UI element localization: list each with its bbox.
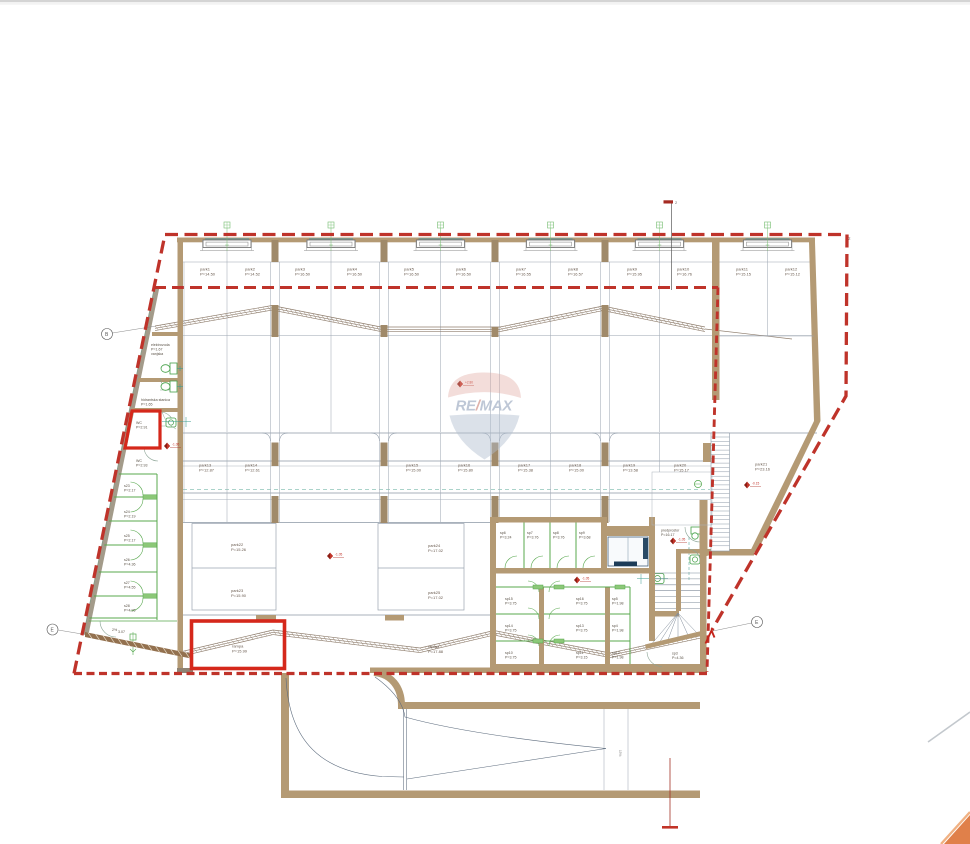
svg-text:P=16.17: P=16.17 — [661, 533, 675, 537]
svg-text:P=12.61: P=12.61 — [245, 468, 261, 473]
svg-text:P=3.15: P=3.15 — [576, 655, 588, 659]
svg-text:-1.05: -1.05 — [678, 537, 685, 541]
svg-text:P=1.67: P=1.67 — [151, 347, 163, 351]
svg-text:P=1.65: P=1.65 — [141, 402, 153, 406]
svg-text:P=16.76: P=16.76 — [677, 272, 693, 277]
svg-text:P=2.19: P=2.19 — [124, 514, 136, 518]
svg-text:sp16: sp16 — [576, 597, 584, 601]
svg-text:3.07: 3.07 — [118, 630, 125, 634]
svg-text:sp8: sp8 — [553, 531, 559, 535]
svg-text:s24: s24 — [124, 510, 130, 514]
svg-text:sp11: sp11 — [576, 651, 584, 655]
svg-text:P=3.75: P=3.75 — [505, 655, 517, 659]
svg-text:P=15.26: P=15.26 — [231, 547, 247, 552]
svg-text:s26: s26 — [124, 558, 130, 562]
svg-text:sp6: sp6 — [500, 531, 506, 535]
svg-text:P=15.12: P=15.12 — [785, 272, 801, 277]
svg-text:s25: s25 — [124, 534, 130, 538]
svg-text:P=23.16: P=23.16 — [755, 467, 771, 472]
svg-text:P=3.75: P=3.75 — [505, 601, 517, 605]
svg-text:P=4.55: P=4.55 — [124, 585, 136, 589]
svg-text:P=2.91: P=2.91 — [136, 425, 148, 429]
svg-text:P=3.68: P=3.68 — [579, 535, 591, 539]
svg-text:elektrovoda: elektrovoda — [151, 343, 170, 347]
svg-text:P=3.75: P=3.75 — [505, 628, 517, 632]
svg-text:P=13.58: P=13.58 — [623, 468, 639, 473]
svg-text:P=15.80: P=15.80 — [458, 468, 474, 473]
svg-text:P=4.36: P=4.36 — [124, 562, 136, 566]
svg-text:P=16.57: P=16.57 — [568, 272, 584, 277]
svg-text:P=2.17: P=2.17 — [124, 488, 136, 492]
svg-text:P=17.88: P=17.88 — [428, 649, 444, 654]
svg-text:sp15: sp15 — [505, 597, 513, 601]
svg-text:sp13: sp13 — [576, 624, 584, 628]
svg-text:-1.05: -1.05 — [335, 552, 342, 556]
svg-text:P=4.36: P=4.36 — [672, 656, 684, 660]
svg-text:P=1.98: P=1.98 — [612, 655, 624, 659]
svg-text:sp10: sp10 — [505, 651, 513, 655]
svg-text:P=17.02: P=17.02 — [428, 595, 444, 600]
svg-text:WC: WC — [136, 421, 142, 425]
svg-text:s27: s27 — [124, 581, 130, 585]
svg-text:sp5: sp5 — [612, 597, 618, 601]
svg-text:P=14.50: P=14.50 — [200, 272, 216, 277]
svg-text:s28: s28 — [124, 604, 130, 608]
svg-text:hidrantska stanica: hidrantska stanica — [141, 398, 170, 402]
svg-text:P=1.98: P=1.98 — [612, 628, 624, 632]
svg-text:vanjska: vanjska — [151, 352, 163, 356]
svg-text:WC: WC — [136, 459, 142, 463]
svg-text:P=15.38: P=15.38 — [518, 468, 534, 473]
svg-text:P=16.55: P=16.55 — [516, 272, 532, 277]
svg-text:P=3.24: P=3.24 — [500, 535, 512, 539]
svg-text:s23: s23 — [124, 484, 130, 488]
svg-text:P=16.50: P=16.50 — [404, 272, 420, 277]
svg-text:P=15.00: P=15.00 — [569, 468, 585, 473]
svg-text:P=15.00: P=15.00 — [406, 468, 422, 473]
svg-text:P=15.95: P=15.95 — [627, 272, 643, 277]
svg-text:P=2.17: P=2.17 — [124, 538, 136, 542]
svg-text:P=3.75: P=3.75 — [576, 628, 588, 632]
svg-text:sp4: sp4 — [612, 624, 618, 628]
svg-text:P=3.75: P=3.75 — [576, 601, 588, 605]
svg-text:P=16.50: P=16.50 — [295, 272, 311, 277]
svg-text:sp12: sp12 — [612, 651, 620, 655]
svg-text:sp3: sp3 — [672, 652, 678, 656]
svg-text:P=2.93: P=2.93 — [136, 463, 148, 467]
svg-text:predprostor: predprostor — [661, 529, 680, 533]
svg-text:P=1.98: P=1.98 — [612, 601, 624, 605]
svg-text:-1.05: -1.05 — [172, 442, 179, 446]
svg-text:P=17.02: P=17.02 — [428, 548, 444, 553]
svg-text:P=16.50: P=16.50 — [347, 272, 363, 277]
svg-text:-1.05: -1.05 — [582, 576, 589, 580]
svg-text:P=15.15: P=15.15 — [736, 272, 752, 277]
svg-text:sp7: sp7 — [527, 531, 533, 535]
svg-text:P=15.90: P=15.90 — [231, 593, 247, 598]
svg-text:P=15.99: P=15.99 — [232, 649, 248, 654]
svg-text:P=3.76: P=3.76 — [527, 535, 539, 539]
svg-text:P=14.52: P=14.52 — [245, 272, 261, 277]
svg-text:P=16.50: P=16.50 — [456, 272, 472, 277]
svg-text:-0.15: -0.15 — [752, 481, 759, 485]
svg-text:sp14: sp14 — [505, 624, 513, 628]
svg-text:P=12.87: P=12.87 — [199, 468, 215, 473]
svg-text:P=4.95: P=4.95 — [124, 608, 136, 612]
svg-text:sp9: sp9 — [579, 531, 585, 535]
svg-text:15%: 15% — [618, 750, 622, 757]
svg-text:P=3.76: P=3.76 — [553, 535, 565, 539]
svg-text:RE/MAX: RE/MAX — [456, 398, 514, 415]
